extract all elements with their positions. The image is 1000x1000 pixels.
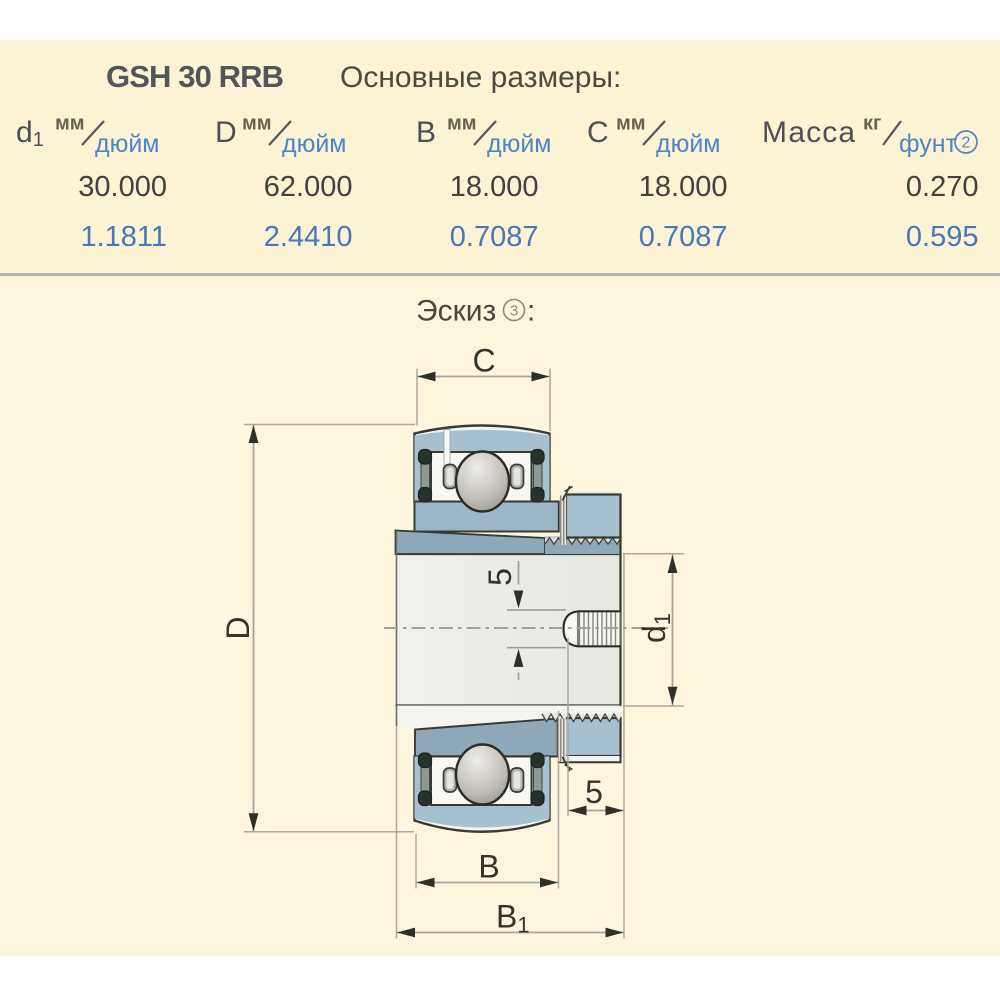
svg-text:B: B	[478, 849, 499, 885]
svg-text:дюйм: дюйм	[95, 130, 160, 158]
svg-text:Эскиз: Эскиз	[416, 295, 496, 328]
svg-text:B: B	[416, 116, 436, 149]
svg-text:мм: мм	[242, 113, 272, 135]
svg-text:0.7087: 0.7087	[450, 221, 539, 253]
svg-text:5: 5	[482, 568, 518, 586]
svg-text:мм: мм	[447, 113, 477, 135]
svg-text:1.1811: 1.1811	[80, 221, 167, 253]
svg-text:0.595: 0.595	[906, 221, 979, 253]
svg-text:2.4410: 2.4410	[264, 221, 353, 253]
svg-text:0.7087: 0.7087	[639, 221, 728, 253]
svg-text:дюйм: дюйм	[656, 130, 721, 158]
svg-text:Масса: Масса	[762, 116, 855, 149]
svg-text:Основные размеры:: Основные размеры:	[340, 61, 621, 94]
svg-text:D: D	[215, 116, 237, 149]
svg-text:кг: кг	[863, 113, 881, 135]
svg-text:d1: d1	[636, 613, 675, 643]
svg-text:C: C	[472, 343, 495, 379]
svg-text:мм: мм	[616, 113, 646, 135]
svg-text::: :	[527, 295, 535, 328]
svg-text:GSH 30 RRB: GSH 30 RRB	[106, 59, 284, 94]
svg-text:C: C	[587, 116, 609, 149]
svg-text:0.270: 0.270	[906, 171, 979, 203]
svg-text:18.000: 18.000	[639, 171, 728, 203]
svg-text:30.000: 30.000	[78, 171, 167, 203]
svg-text:2: 2	[962, 135, 971, 152]
svg-text:5: 5	[585, 774, 603, 810]
svg-text:мм: мм	[55, 113, 85, 135]
svg-text:B1: B1	[496, 899, 530, 938]
svg-text:62.000: 62.000	[264, 171, 353, 203]
svg-text:d1: d1	[16, 116, 44, 151]
svg-text:дюйм: дюйм	[282, 130, 347, 158]
svg-text:D: D	[220, 616, 256, 639]
svg-text:18.000: 18.000	[450, 171, 539, 203]
svg-text:дюйм: дюйм	[487, 130, 552, 158]
svg-text:фунт: фунт	[899, 130, 958, 158]
svg-text:3: 3	[510, 303, 518, 320]
